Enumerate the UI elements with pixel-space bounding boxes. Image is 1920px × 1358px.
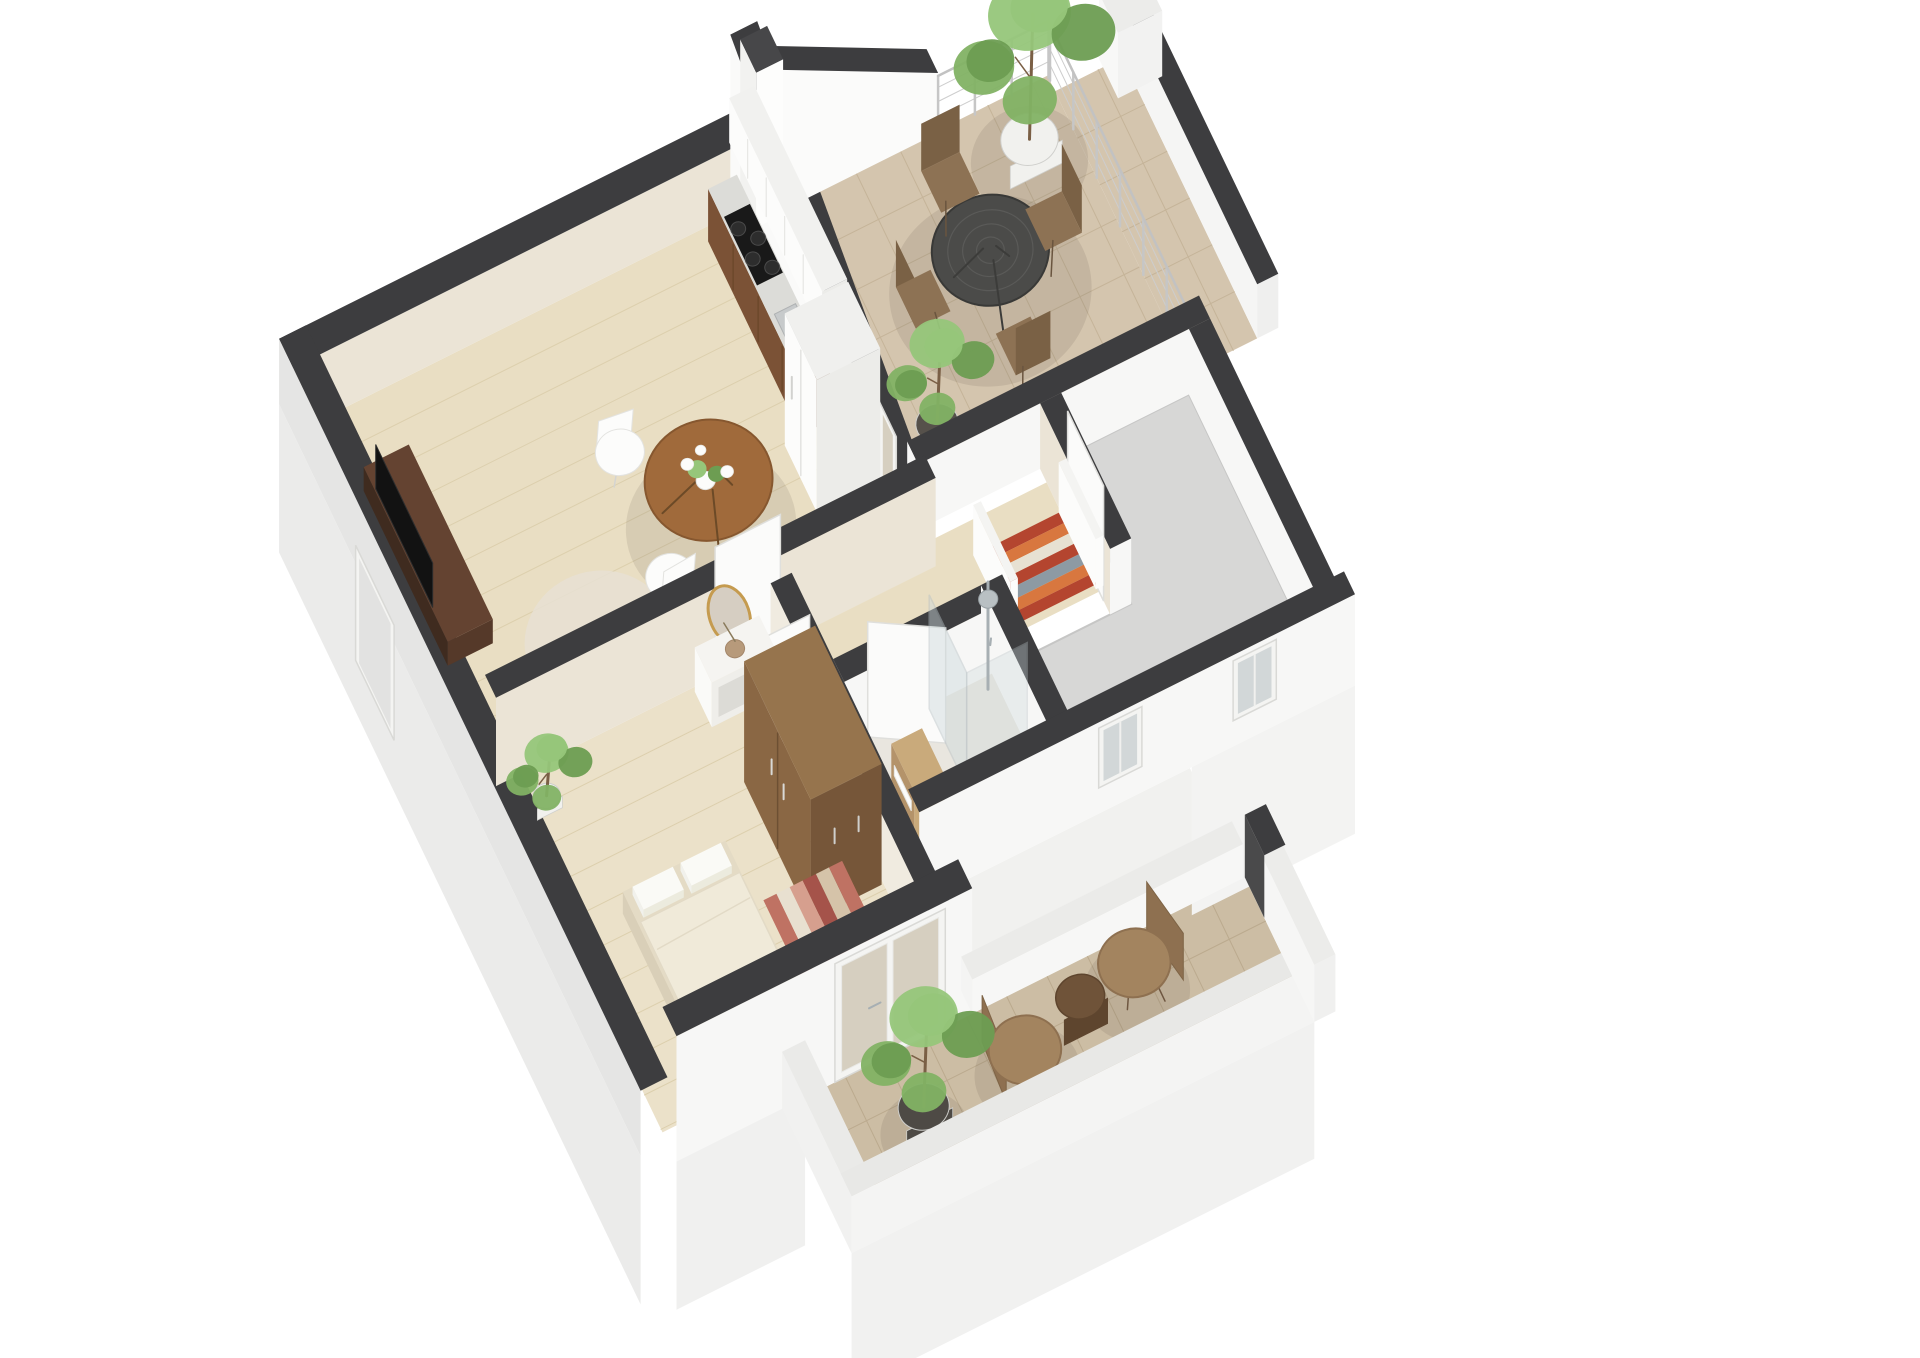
ext-parapet-south-face xyxy=(1257,274,1278,339)
stair-rail-right-south-face xyxy=(1096,535,1104,589)
lower-terrace-parapet-ne-south-face xyxy=(1314,954,1335,1022)
terrace-nw-wall-top xyxy=(757,46,938,73)
floorplan-3d-render xyxy=(0,0,1920,1358)
page-background xyxy=(0,0,1920,1358)
stair-room-wall-south-face xyxy=(1110,538,1131,614)
terrace-tree-large-branch xyxy=(1015,57,1029,76)
shower-handheld xyxy=(990,638,991,645)
